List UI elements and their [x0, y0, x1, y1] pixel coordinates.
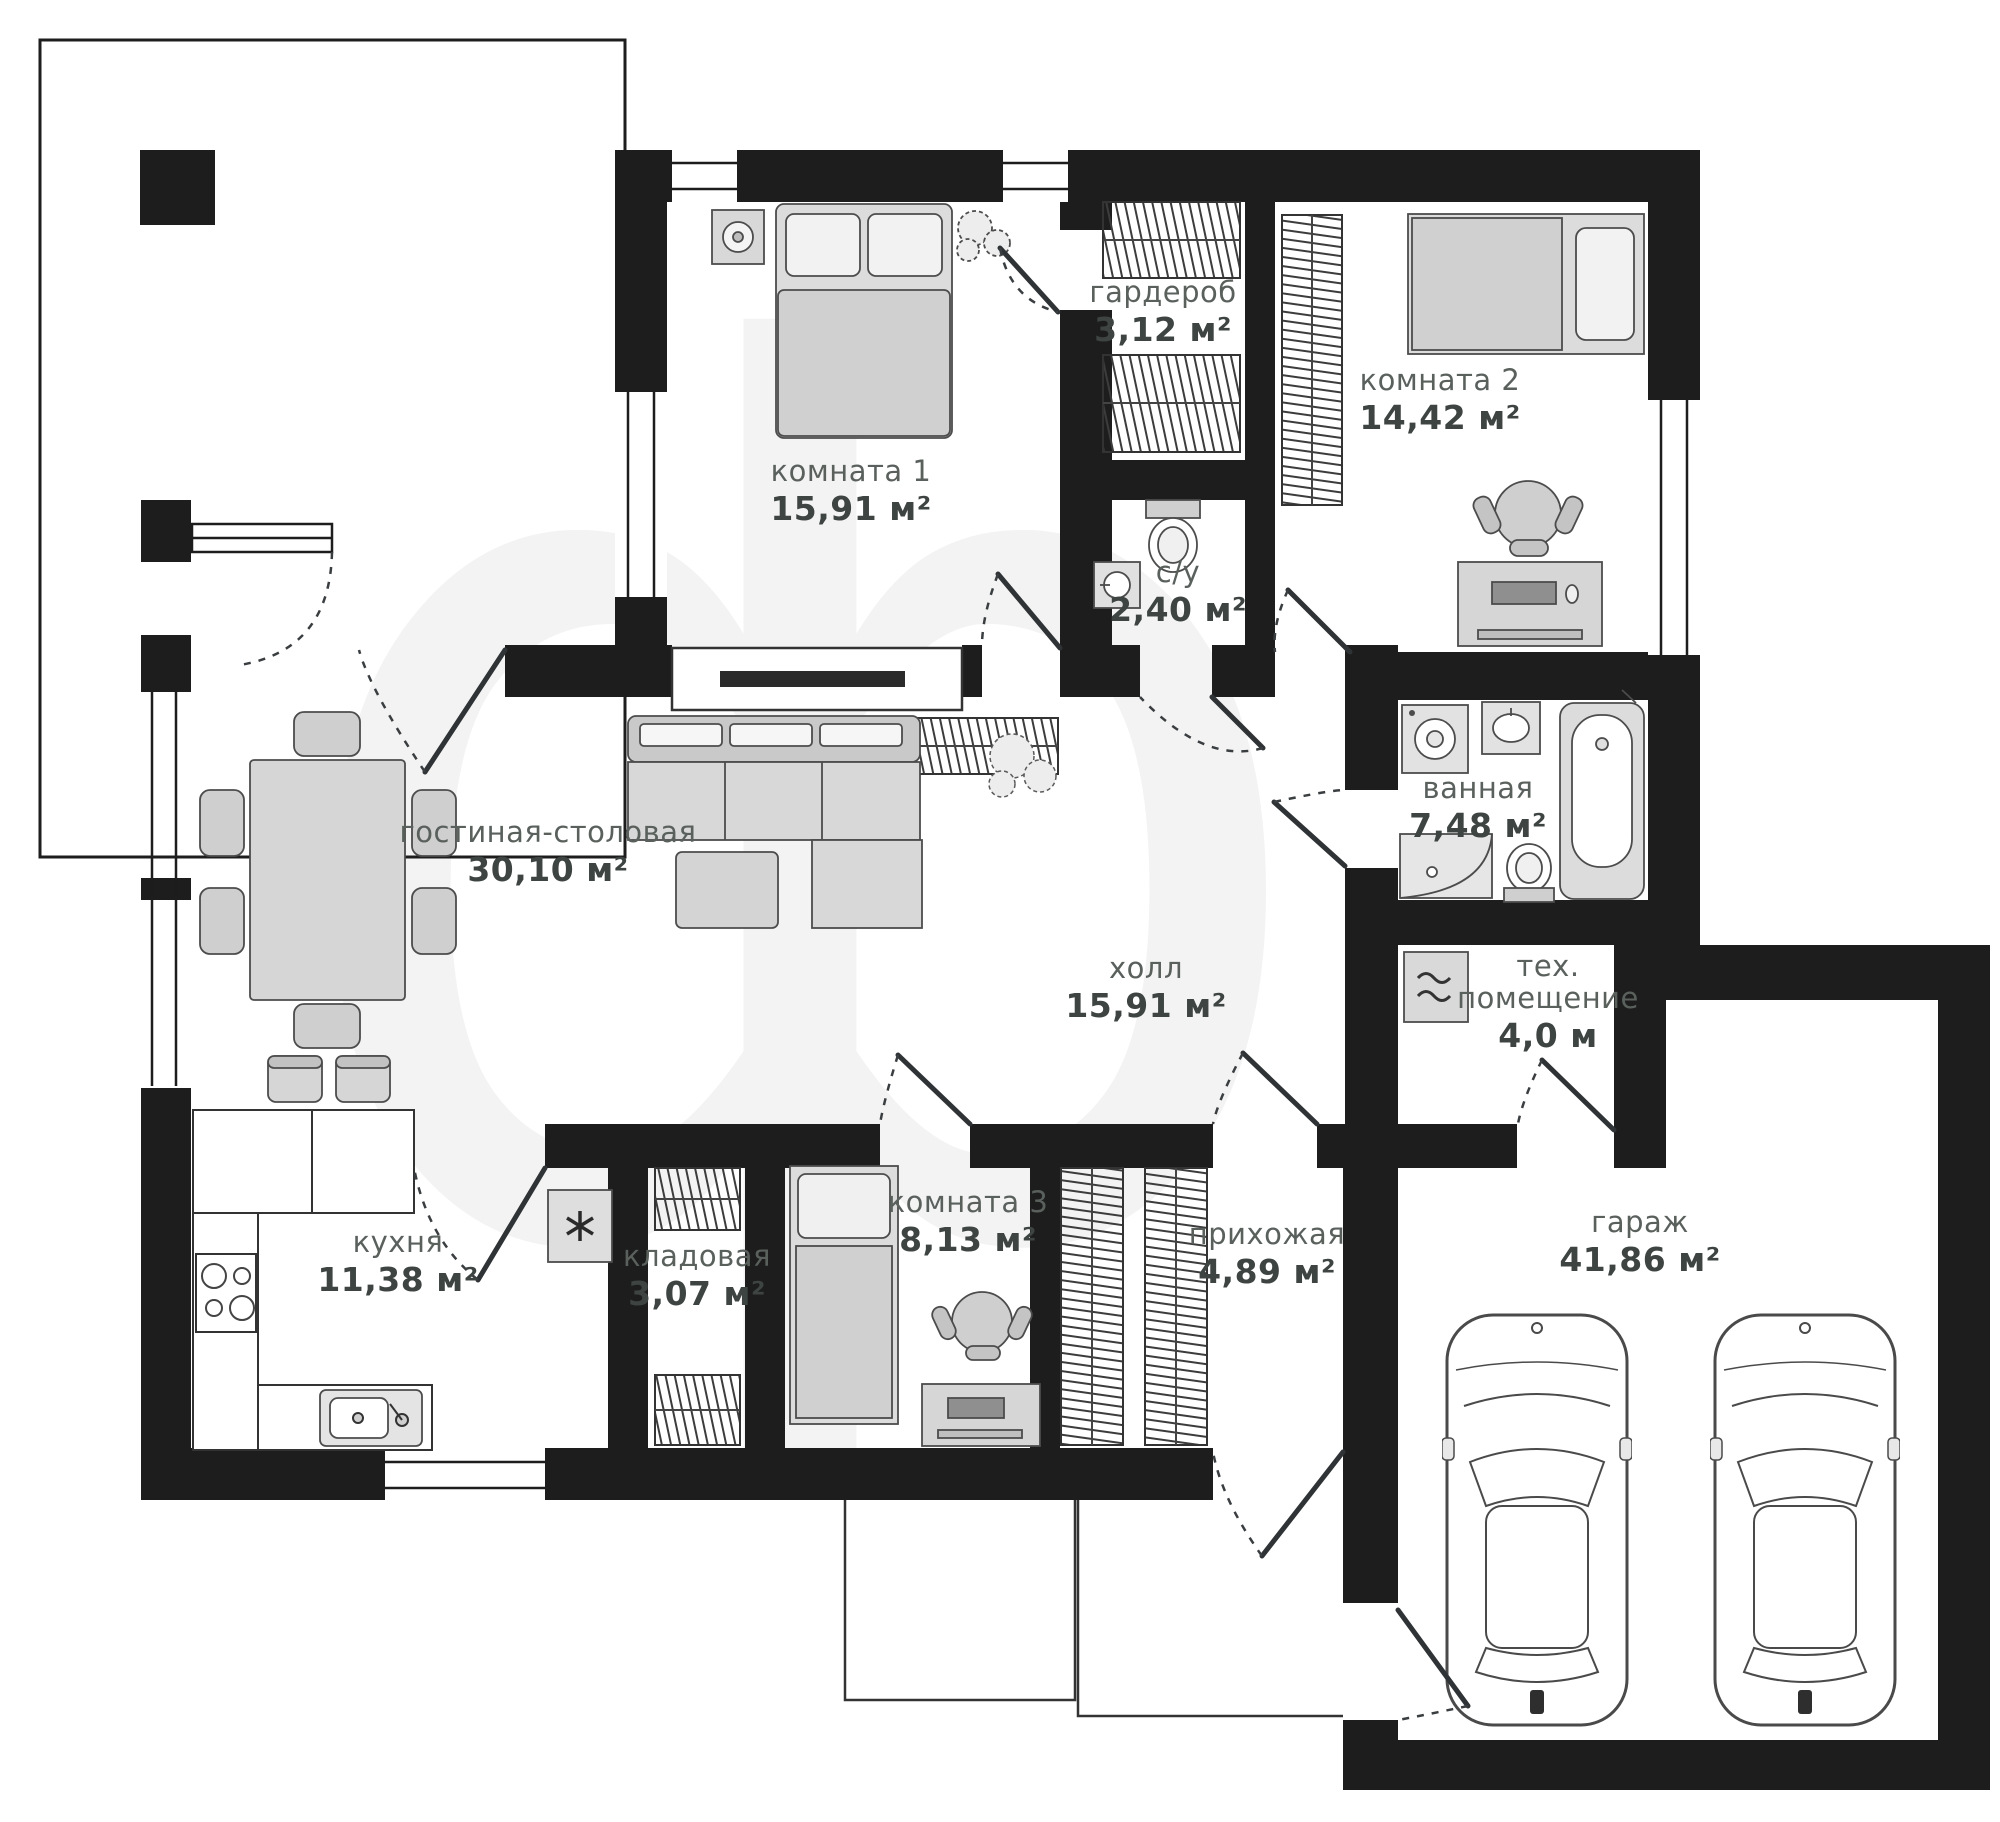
room-area: 11,38 м²: [317, 1262, 478, 1298]
window-icon: [672, 150, 737, 202]
room-label-room2: комната 2 14,42 м²: [1359, 364, 1520, 436]
room-name: кладовая: [623, 1240, 771, 1272]
wardrobe-icon: [1282, 215, 1342, 505]
room-area: 30,10 м²: [400, 852, 697, 888]
room-label-room3: комната 3 8,13 м²: [888, 1186, 1049, 1258]
bathtub-icon: [1560, 690, 1644, 899]
sink-icon: [1482, 702, 1540, 754]
kitchen-sink-icon: [320, 1390, 422, 1446]
room-label-hall: холл 15,91 м²: [1065, 952, 1226, 1024]
dining-table-icon: [250, 760, 405, 1000]
room-name: кухня: [317, 1226, 478, 1258]
wardrobe-icon: [1103, 202, 1240, 278]
room-area: 15,91 м²: [770, 491, 931, 527]
wardrobe-icon: [655, 1168, 740, 1230]
room-label-room1: комната 1 15,91 м²: [770, 455, 931, 527]
room-label-entry: прихожая 4,89 м²: [1189, 1218, 1345, 1290]
nightstand-icon: [712, 210, 764, 264]
room-area: 2,40 м²: [1109, 592, 1247, 628]
toilet-icon: [1504, 844, 1554, 902]
wardrobe-icon: [1145, 1168, 1207, 1445]
porch-outline: [845, 1500, 1343, 1716]
room-name: ванная: [1409, 772, 1547, 804]
room-label-kitchen: кухня 11,38 м²: [317, 1226, 478, 1298]
room-name: комната 2: [1359, 364, 1520, 396]
single-bed-icon: [1408, 214, 1644, 354]
single-bed-icon: [790, 1166, 898, 1424]
floor-plan-svg: ф: [0, 0, 2000, 1822]
washing-machine-icon: [1402, 705, 1468, 773]
room-label-garage: гараж 41,86 м²: [1559, 1206, 1720, 1278]
car-icon: [1442, 1315, 1632, 1725]
window-icon: [1003, 150, 1068, 202]
room-name: гардероб: [1089, 276, 1236, 308]
wardrobe-icon: [1061, 1168, 1123, 1445]
room-area: 3,07 м²: [623, 1276, 771, 1312]
wardrobe-icon: [1103, 355, 1240, 452]
stove-icon: [196, 1254, 256, 1332]
room-name: гостиная-столовая: [400, 816, 697, 848]
room-label-tech: тех. помещение 4,0 м: [1457, 950, 1639, 1054]
car-icon: [1710, 1315, 1900, 1725]
double-bed-icon: [776, 204, 952, 438]
tv-console-icon: [672, 648, 962, 710]
room-area: 4,89 м²: [1189, 1254, 1345, 1290]
room-area: 3,12 м²: [1089, 312, 1236, 348]
terrace-door-icon: [192, 524, 332, 552]
wardrobe-icon: [655, 1375, 740, 1445]
room-area: 7,48 м²: [1409, 808, 1547, 844]
room-name-line2: помещение: [1457, 982, 1639, 1014]
room-label-bathroom: ванная 7,48 м²: [1409, 772, 1547, 844]
room-label-wc: с/у 2,40 м²: [1109, 556, 1247, 628]
room-name: прихожая: [1189, 1218, 1345, 1250]
room-label-living: гостиная-столовая 30,10 м²: [400, 816, 697, 888]
desk-icon: [1458, 562, 1602, 646]
room-label-wardrobe: гардероб 3,12 м²: [1089, 276, 1236, 348]
desk-icon: [922, 1384, 1040, 1446]
floor-plan: ф: [0, 0, 2000, 1822]
room-name: с/у: [1109, 556, 1247, 588]
desk-chair-icon: [1471, 481, 1585, 556]
room-name: комната 3: [888, 1186, 1049, 1218]
fridge-icon: [548, 1190, 612, 1262]
room-area: 41,86 м²: [1559, 1242, 1720, 1278]
room-name: холл: [1065, 952, 1226, 984]
window-icon: [1648, 400, 1700, 655]
room-area: 4,0 м: [1457, 1018, 1639, 1054]
room-name: тех.: [1457, 950, 1639, 982]
room-name: гараж: [1559, 1206, 1720, 1238]
room-area: 14,42 м²: [1359, 400, 1520, 436]
room-area: 15,91 м²: [1065, 988, 1226, 1024]
window-icon: [385, 1448, 545, 1500]
window-icon: [615, 392, 667, 597]
room-name: комната 1: [770, 455, 931, 487]
room-label-pantry: кладовая 3,07 м²: [623, 1240, 771, 1312]
room-area: 8,13 м²: [888, 1222, 1049, 1258]
